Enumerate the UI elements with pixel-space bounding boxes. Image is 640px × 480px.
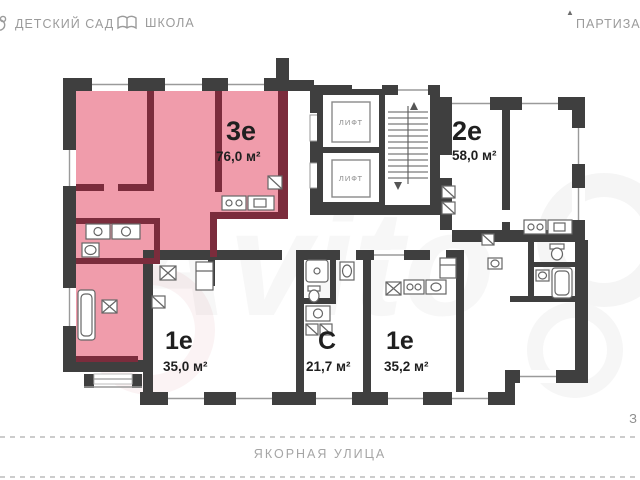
floorplan-svg: Avito — [0, 0, 640, 480]
apartment-2e[interactable] — [440, 97, 585, 242]
bathtub-icon — [552, 268, 572, 298]
balcony-3e — [84, 374, 142, 388]
apartment-studio[interactable] — [304, 260, 363, 392]
staircase — [388, 102, 428, 190]
street-dashed-line — [0, 436, 640, 438]
toilet-icon — [550, 244, 564, 260]
apartment-1e-right[interactable] — [371, 260, 456, 392]
apartment-1e-left[interactable] — [153, 260, 296, 392]
floorplan-viewer: ДЕТСКИЙ САД ШКОЛА ▲ ПАРТИЗАНС Avito — [0, 0, 640, 480]
street-label-bottom: ЯКОРНАЯ УЛИЦА — [0, 447, 640, 461]
street-dashed-line — [0, 476, 640, 478]
street-label-right-partial: З — [629, 411, 637, 426]
elevator-block: ЛИФТ ЛИФТ — [310, 92, 382, 205]
stairs-up-arrow-icon — [410, 102, 418, 110]
elevator-2-label: ЛИФТ — [339, 174, 363, 183]
elevator-1-label: ЛИФТ — [339, 118, 363, 127]
sink-icon — [536, 270, 549, 281]
sink-icon — [488, 258, 502, 269]
